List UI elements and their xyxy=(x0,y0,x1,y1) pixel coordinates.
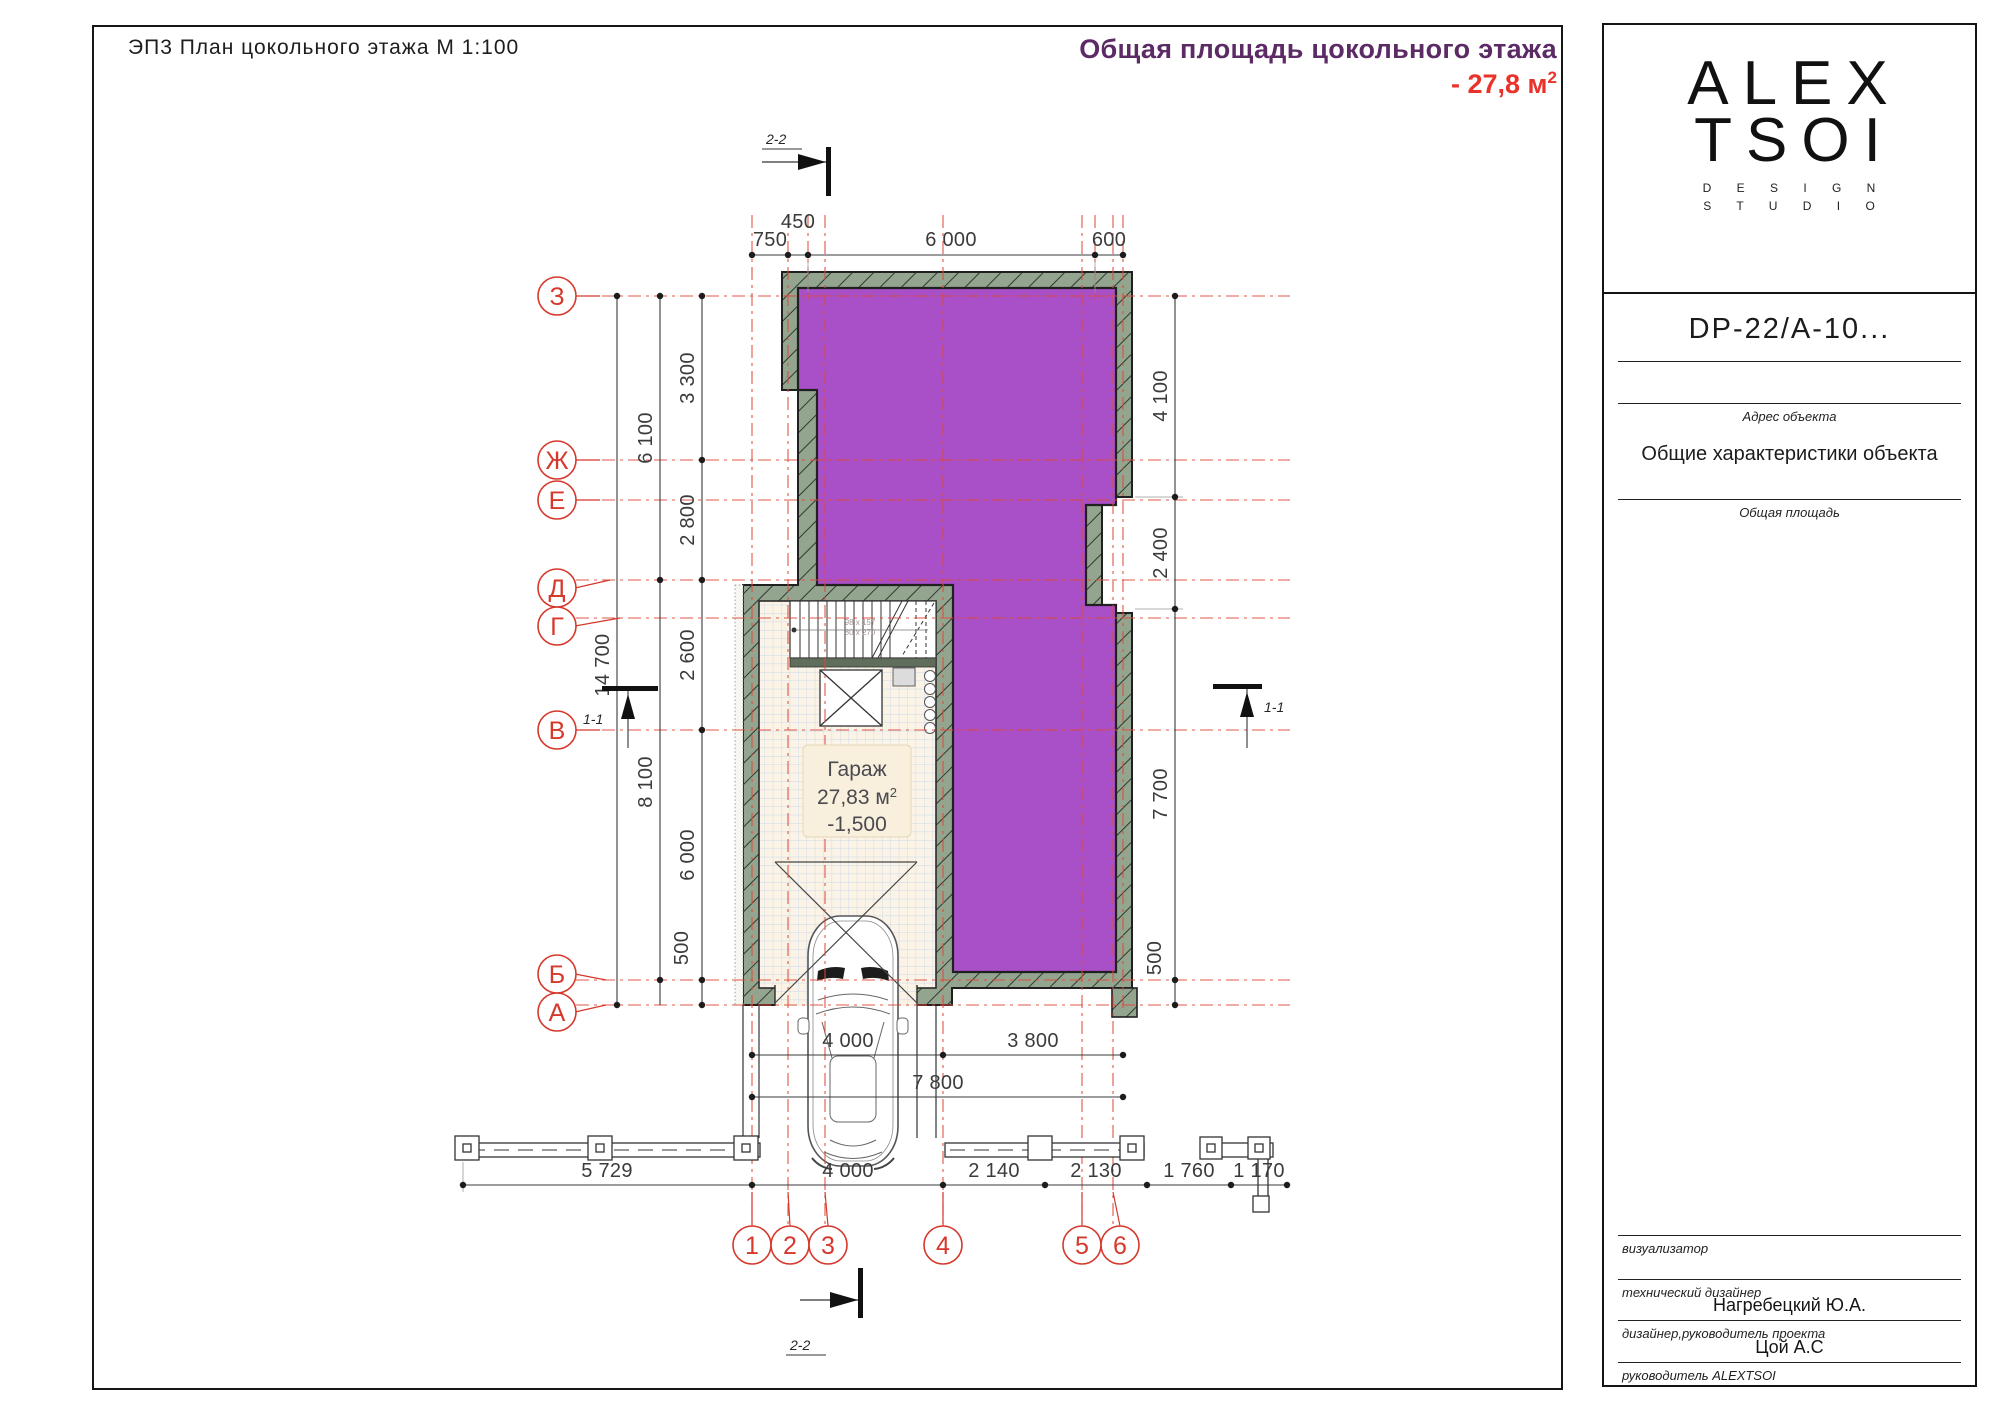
room-area-sup: 2 xyxy=(890,785,897,800)
dim-label: 7 800 xyxy=(912,1072,964,1094)
dim-label: 450 xyxy=(781,211,815,233)
axis-markers-bottom: 1 2 3 4 5 6 xyxy=(733,1192,1139,1264)
dim-label: 2 130 xyxy=(1070,1160,1122,1182)
logo-sub-2: S T U D I O xyxy=(1614,197,1975,215)
titleblock-rule xyxy=(1618,361,1961,362)
section-marker-2-2-bottom: 2-2 xyxy=(786,1268,863,1355)
titleblock-rule xyxy=(1618,499,1961,500)
axis-number: 5 xyxy=(1075,1232,1089,1260)
fence-left xyxy=(455,1136,760,1160)
dim-label: 2 800 xyxy=(677,494,699,546)
room-level: -1,500 xyxy=(827,813,887,836)
section-label: 2-2 xyxy=(765,131,786,147)
title-block: ALEX TSOI D E S I G N S T U D I O DP-22/… xyxy=(1602,23,1977,1387)
insulation-strip xyxy=(735,585,743,1005)
axis-number: 2 xyxy=(783,1232,797,1260)
section-label: 1-1 xyxy=(1264,699,1284,715)
logo-sub-1: D E S I G N xyxy=(1614,179,1975,197)
axis-number: 3 xyxy=(821,1232,835,1260)
corner-pier xyxy=(1112,988,1137,1017)
mirror-left xyxy=(798,1018,809,1034)
axis-letter: Е xyxy=(549,487,566,515)
dim-label: 4 000 xyxy=(822,1160,874,1182)
signature-value: Нагребецкий Ю.А. xyxy=(1604,1295,1975,1316)
dim-label: 2 140 xyxy=(968,1160,1020,1182)
building xyxy=(735,272,1137,1138)
characteristics-title: Общие характеристики объекта xyxy=(1604,443,1975,466)
dim-label: 7 700 xyxy=(1150,768,1172,820)
logo-line-2: TSOI xyxy=(1614,112,1975,169)
signature-rule xyxy=(1618,1320,1961,1321)
axis-letter: З xyxy=(549,283,564,311)
axis-number: 1 xyxy=(745,1232,759,1260)
room-area: 27,83 м2 xyxy=(817,785,897,809)
axis-letter: Ж xyxy=(545,447,568,475)
staircase: 98 x 157 80 x 270 xyxy=(790,601,936,667)
drawing-sheet: { "sheet": { "title": "ЭП3 План цокольно… xyxy=(0,0,2000,1414)
fence-right xyxy=(945,1136,1144,1160)
room-label: Гараж 27,83 м2 -1,500 xyxy=(803,745,911,837)
dim-label: 6 000 xyxy=(677,829,699,881)
stair-note: 80 x 270 xyxy=(845,628,876,637)
axis-letter: А xyxy=(549,999,566,1027)
section-marker-2-2-top: 2-2 xyxy=(762,131,831,196)
dim-label: 500 xyxy=(671,931,693,965)
stair-note: 98 x 157 xyxy=(845,618,876,627)
dim-label: 2 600 xyxy=(677,629,699,681)
address-label: Адрес объекта xyxy=(1604,409,1975,424)
dim-label: 6 100 xyxy=(635,412,657,464)
room-name: Гараж xyxy=(827,758,886,781)
section-label: 1-1 xyxy=(583,711,603,727)
equipment-box xyxy=(893,668,915,686)
axis-number: 4 xyxy=(936,1232,950,1260)
dim-label: 3 300 xyxy=(677,352,699,404)
mirror-right xyxy=(897,1018,908,1034)
axis-number: 6 xyxy=(1113,1232,1127,1260)
pit-shaft xyxy=(820,670,882,726)
dim-label: 500 xyxy=(1144,941,1166,975)
dim-label: 3 800 xyxy=(1007,1030,1059,1052)
total-area-label: Общая площадь xyxy=(1604,505,1975,520)
logo-line-1: ALEX xyxy=(1614,55,1975,112)
dim-label: 1 170 xyxy=(1233,1160,1285,1182)
stair-landing-edge xyxy=(790,658,936,667)
signature-label: руководитель ALEXTSOI xyxy=(1622,1368,1776,1383)
dim-label: 1 760 xyxy=(1163,1160,1215,1182)
signature-rule xyxy=(1618,1235,1961,1236)
dim-label: 8 100 xyxy=(635,756,657,808)
dim-label: 4 000 xyxy=(822,1030,874,1052)
signature-value: Цой А.С xyxy=(1604,1337,1975,1358)
dim-label: 600 xyxy=(1092,229,1126,251)
room-area-number: 27,83 м xyxy=(817,786,890,809)
axis-letter: В xyxy=(549,717,566,745)
document-code: DP-22/А-10... xyxy=(1604,313,1975,346)
axis-letter: Д xyxy=(549,575,566,603)
dim-label: 5 729 xyxy=(581,1160,633,1182)
section-label: 2-2 xyxy=(789,1337,810,1353)
titleblock-rule xyxy=(1618,403,1961,404)
dim-label: 4 100 xyxy=(1150,370,1172,422)
signature-label: визуализатор xyxy=(1622,1241,1708,1256)
dim-label: 6 000 xyxy=(925,229,977,251)
radiator-circles xyxy=(925,671,936,734)
section-marker-1-1-right: 1-1 xyxy=(1213,684,1284,748)
signature-rule xyxy=(1618,1279,1961,1280)
titleblock-divider xyxy=(1604,292,1975,294)
axis-letter: Б xyxy=(549,961,565,989)
signature-rule xyxy=(1618,1362,1961,1363)
dim-label: 2 400 xyxy=(1150,527,1172,579)
alex-tsoi-logo: ALEX TSOI D E S I G N S T U D I O xyxy=(1604,55,1975,215)
axis-letter: Г xyxy=(550,613,564,641)
